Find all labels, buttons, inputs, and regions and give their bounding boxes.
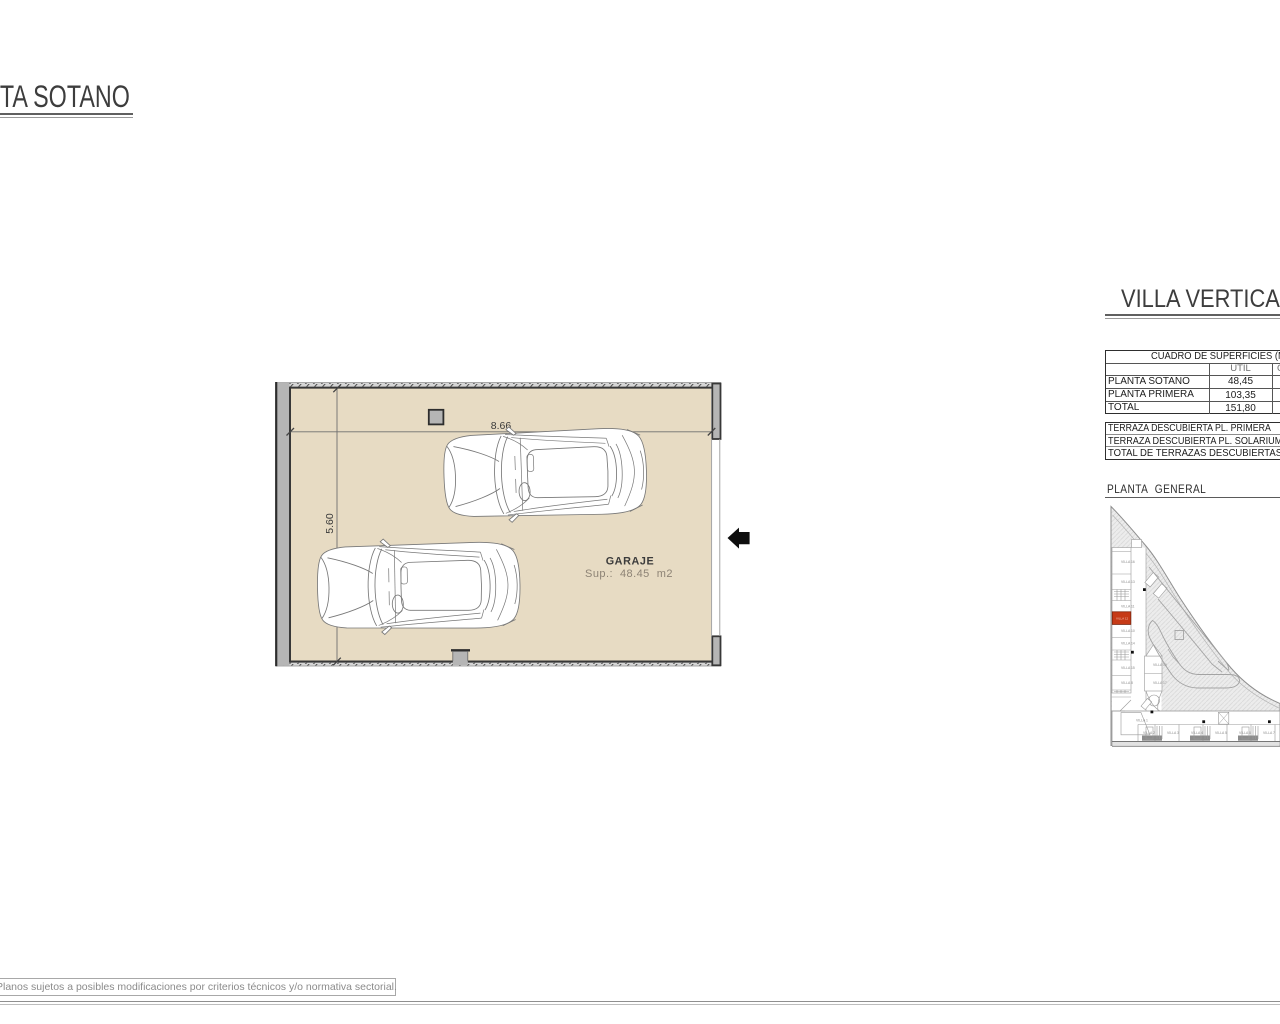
svg-text:VILLA 5: VILLA 5 <box>1215 731 1227 735</box>
svg-text:VILLA 12: VILLA 12 <box>1116 617 1129 621</box>
svg-text:5.60: 5.60 <box>324 513 336 534</box>
svg-text:Sup.: 48.45 m2: Sup.: 48.45 m2 <box>585 568 673 580</box>
svg-text:VILLA 7: VILLA 7 <box>1263 731 1275 735</box>
svg-text:VILLA 1: VILLA 1 <box>1136 719 1148 723</box>
svg-text:VILLA 13: VILLA 13 <box>1121 580 1135 584</box>
svg-text:VILLA 10: VILLA 10 <box>1121 629 1135 633</box>
svg-text:GARAJE: GARAJE <box>606 556 655 568</box>
svg-text:VILLA 19: VILLA 19 <box>1153 663 1167 667</box>
svg-text:VILLA 16: VILLA 16 <box>1121 560 1135 564</box>
svg-text:VILLA 15: VILLA 15 <box>1121 666 1135 670</box>
svg-text:VILLA 11: VILLA 11 <box>1121 605 1135 609</box>
svg-text:VILLA 14: VILLA 14 <box>1121 642 1135 646</box>
svg-text:VILLA 17: VILLA 17 <box>1153 681 1167 685</box>
svg-text:VILLA 8: VILLA 8 <box>1121 681 1133 685</box>
svg-text:VILLA 3: VILLA 3 <box>1167 731 1179 735</box>
